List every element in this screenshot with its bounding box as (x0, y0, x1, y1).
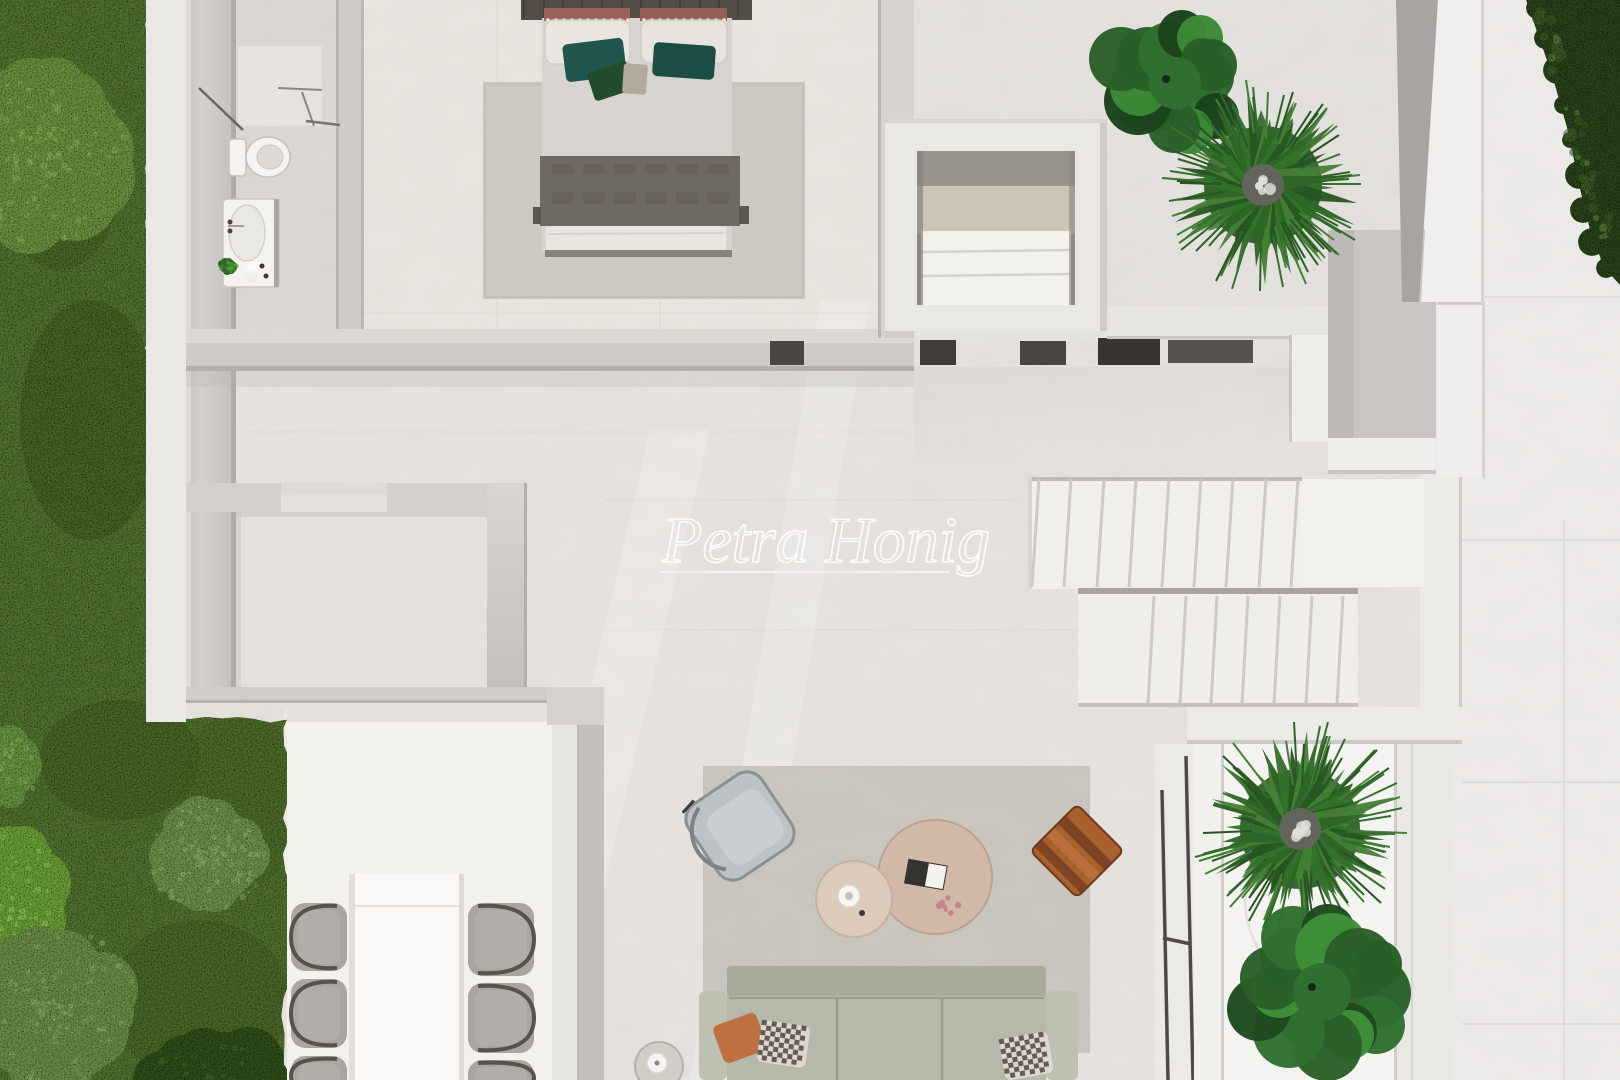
svg-text:Petra Honig: Petra Honig (661, 504, 990, 577)
